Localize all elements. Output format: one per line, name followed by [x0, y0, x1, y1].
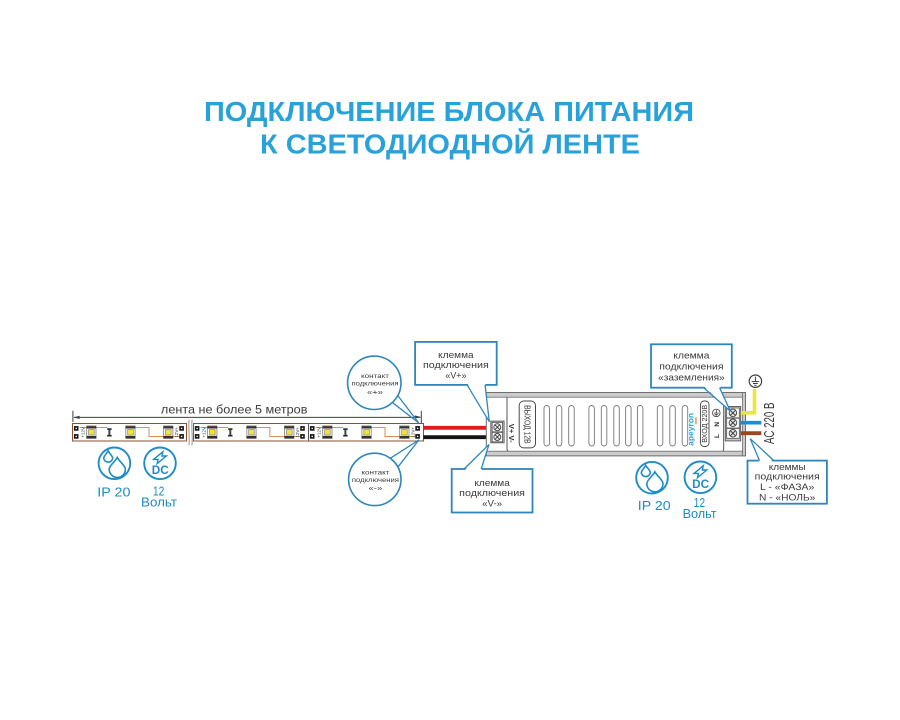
svg-text:apeyron: apeyron: [687, 413, 696, 446]
svg-text:«заземления»: «заземления»: [658, 372, 725, 383]
svg-text:Вольт: Вольт: [141, 495, 177, 509]
svg-text:клемма: клемма: [673, 351, 710, 362]
svg-text:AC 220 В: AC 220 В: [762, 403, 778, 445]
svg-text:«V+»: «V+»: [445, 370, 466, 381]
svg-text:подключения: подключения: [755, 471, 820, 481]
svg-text:лента не более 5 метров: лента не более 5 метров: [161, 403, 308, 417]
svg-text:+12V: +12V: [201, 427, 206, 438]
svg-text:12V+: 12V+: [174, 427, 179, 438]
svg-text:ПОДКЛЮЧЕНИЕ БЛОКА ПИТАНИЯ: ПОДКЛЮЧЕНИЕ БЛОКА ПИТАНИЯ: [204, 96, 694, 127]
svg-text:12V+: 12V+: [410, 427, 415, 438]
svg-text:«-»: «-»: [368, 484, 382, 493]
svg-text:«V-»: «V-»: [482, 498, 502, 509]
svg-text:V+ V-: V+ V-: [507, 424, 516, 444]
svg-text:контакт: контакт: [361, 470, 389, 477]
svg-text:12V+: 12V+: [295, 427, 300, 438]
svg-text:L: L: [714, 434, 721, 438]
svg-text:N: N: [714, 422, 721, 427]
svg-text:контакт: контакт: [361, 373, 389, 380]
svg-text:IP 20: IP 20: [97, 485, 130, 499]
svg-text:N - «НОЛЬ»: N - «НОЛЬ»: [759, 493, 815, 503]
svg-text:К СВЕТОДИОДНОЙ ЛЕНТЕ: К СВЕТОДИОДНОЙ ЛЕНТЕ: [260, 129, 640, 160]
svg-text:+12V: +12V: [81, 427, 86, 438]
svg-text:L - «ФАЗА»: L - «ФАЗА»: [760, 482, 814, 492]
svg-text:+12V: +12V: [317, 427, 322, 438]
svg-text:подключения: подключения: [659, 362, 723, 373]
svg-text:IP 20: IP 20: [638, 499, 671, 513]
svg-text:Вольт: Вольт: [683, 507, 717, 521]
svg-text:«+»: «+»: [367, 387, 383, 396]
svg-text:ВХОД 220В: ВХОД 220В: [702, 404, 709, 442]
svg-text:ВЫХОД 12В: ВЫХОД 12В: [523, 405, 532, 444]
